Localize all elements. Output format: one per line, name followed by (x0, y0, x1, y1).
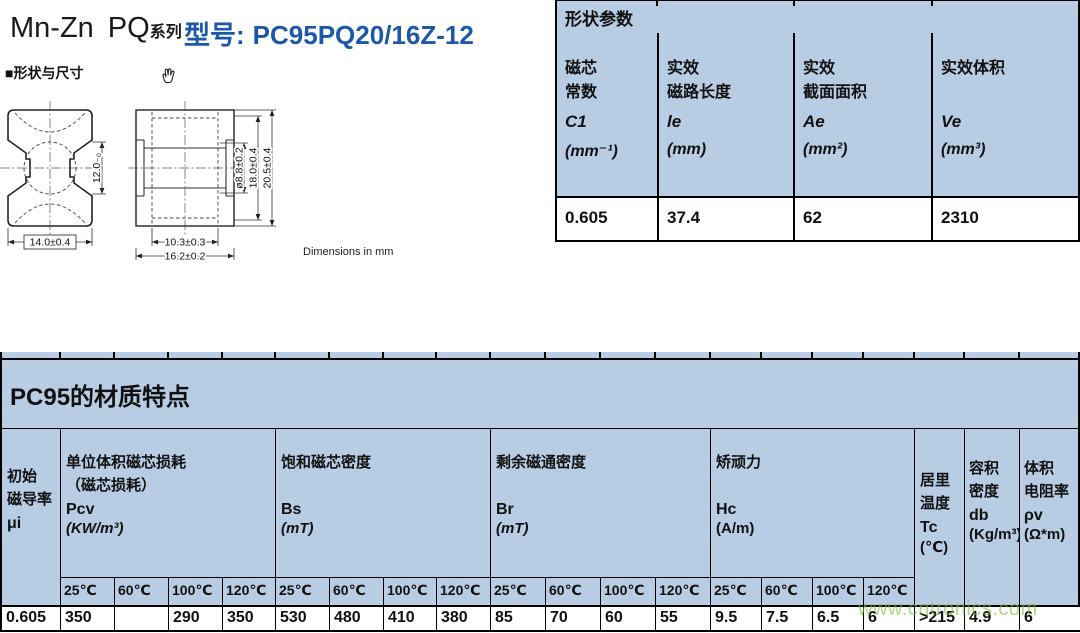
pcv-label-line2: （磁芯损耗） (66, 477, 156, 494)
tc-label-line1: 居里 (920, 472, 950, 489)
grab-cursor-icon (158, 66, 178, 88)
br-value-120: 55 (655, 605, 710, 630)
hc-value-60: 7.5 (761, 605, 812, 630)
hc-temp-25: 25℃ (710, 577, 761, 605)
dim-outer-height: 20.5±0.4 (262, 147, 274, 188)
table-top-tick (793, 1, 795, 6)
shape-params-table: 形状参数 磁芯常数 C1 (mm⁻¹) 实效磁路长度 le (mm) 实效截面面… (555, 0, 1080, 242)
tc-header: 居里温度 Tc (℃) (914, 428, 964, 605)
pcv-symbol: Pcv (66, 501, 275, 519)
br-unit: (mT) (496, 520, 710, 537)
pcv-temp-25: 25℃ (60, 577, 114, 605)
series-title: Mn-ZnPQ系列 (10, 12, 182, 45)
shape-params-title: 形状参数 (557, 1, 1078, 33)
mu-label-line2: 磁导率 (7, 491, 52, 508)
hc-label: 矫顽力 (716, 454, 761, 471)
hc-value-25: 9.5 (710, 605, 761, 630)
br-header: 剩余磁通密度 Br (mT) (490, 428, 710, 577)
ae-header: 实效截面面积 Ae (mm²) (793, 33, 931, 196)
c1-label-line1: 磁芯 (565, 60, 597, 77)
mu-label-line1: 初始 (7, 468, 37, 485)
pcv-unit: (KW/m³) (66, 520, 275, 537)
bs-temp-120: 120℃ (436, 577, 490, 605)
hc-temp-100: 100℃ (812, 577, 863, 605)
tc-label-line2: 温度 (920, 495, 950, 512)
bs-unit: (mT) (281, 520, 490, 537)
hc-temp-60: 60℃ (761, 577, 812, 605)
bs-header: 饱和磁芯密度 Bs (mT) (275, 428, 490, 577)
pcv-temp-60: 60℃ (114, 577, 168, 605)
dim-side-outer-width: 16.2±0.2 (165, 251, 206, 263)
pcv-value-120: 350 (222, 605, 275, 630)
db-label-line1: 容积 (969, 460, 999, 477)
bs-label: 饱和磁芯密度 (281, 454, 371, 471)
pcv-header: 单位体积磁芯损耗（磁芯损耗） Pcv (KW/m³) (60, 428, 275, 577)
watermark: www.cntronics.com (858, 598, 1038, 621)
ve-label-line1: 实效体积 (941, 60, 1005, 77)
section-title-text: 形状与尺寸 (13, 65, 83, 81)
bs-temp-100: 100℃ (383, 577, 436, 605)
hc-unit: (A/m) (716, 520, 914, 537)
br-label: 剩余磁通密度 (496, 454, 586, 471)
table-top-tick (656, 1, 658, 6)
dim-hole-diameter: ø8.8±0.2 (234, 147, 246, 189)
bs-value-100: 410 (383, 605, 436, 630)
series-name: Mn-Zn (10, 12, 94, 44)
material-table: PC95的材质特点 初始磁导率 μi 单位体积磁芯损耗（磁芯损耗） Pcv (K… (0, 352, 1080, 632)
rho-label-line1: 体积 (1024, 460, 1054, 477)
table-top-tick (931, 1, 933, 6)
ae-label-line2: 截面面积 (803, 84, 867, 101)
db-header: 容积密度 db (Kg/m³)*10³ (964, 428, 1019, 605)
series-suffix: 系列 (150, 24, 182, 41)
pcv-value-25: 350 (60, 605, 114, 630)
hc-header: 矫顽力 Hc (A/m) (710, 428, 914, 577)
ve-unit: (mm³) (941, 141, 1078, 159)
dim-side-inner-width: 10.3±0.3 (165, 237, 206, 249)
core-dimension-diagram: 14.0±0.4 12.0₋₀ ø8.8±0.2 18.0±0.4 20.5±0… (0, 96, 440, 268)
le-value: 37.4 (657, 196, 793, 240)
pcv-value-60 (114, 605, 168, 630)
ve-symbol: Ve (941, 112, 1078, 132)
mu-value: 0.605 (2, 605, 60, 630)
db-unit: (Kg/m³)*10³ (969, 526, 1019, 543)
br-temp-100: 100℃ (600, 577, 655, 605)
material-title: PC95的材质特点 (10, 377, 190, 412)
c1-symbol: C1 (565, 112, 657, 132)
ae-symbol: Ae (803, 112, 931, 132)
bs-value-120: 380 (436, 605, 490, 630)
mu-header: 初始磁导率 μi (2, 428, 60, 605)
le-header: 实效磁路长度 le (mm) (657, 33, 793, 196)
series-family: PQ (108, 12, 150, 44)
hc-value-100: 6.5 (812, 605, 863, 630)
dim-front-width: 14.0±0.4 (30, 237, 71, 249)
mu-symbol: μi (7, 515, 60, 533)
ve-header: 实效体积 Ve (mm³) (931, 33, 1078, 196)
br-symbol: Br (496, 501, 710, 519)
br-temp-60: 60℃ (545, 577, 600, 605)
tc-symbol: Tc (920, 519, 964, 537)
model-number: 型号:PC95PQ20/16Z-12 (184, 15, 474, 52)
br-temp-25: 25℃ (490, 577, 545, 605)
c1-header: 磁芯常数 C1 (mm⁻¹) (557, 33, 657, 196)
bs-temp-60: 60℃ (329, 577, 383, 605)
pcv-value-100: 290 (168, 605, 222, 630)
bs-symbol: Bs (281, 501, 490, 519)
db-label-line2: 密度 (969, 483, 999, 500)
dim-inner-height: 18.0±0.4 (248, 147, 260, 188)
bs-value-25: 530 (275, 605, 329, 630)
le-unit: (mm) (667, 141, 793, 159)
br-value-25: 85 (490, 605, 545, 630)
le-symbol: le (667, 112, 793, 132)
br-value-60: 70 (545, 605, 600, 630)
pcv-temp-100: 100℃ (168, 577, 222, 605)
c1-unit: (mm⁻¹) (565, 141, 657, 161)
pcv-temp-120: 120℃ (222, 577, 275, 605)
hc-symbol: Hc (716, 501, 914, 519)
dim-front-mid-height: 12.0₋₀ (91, 153, 103, 183)
shape-section-title: ■形状与尺寸 (5, 63, 83, 83)
br-temp-120: 120℃ (655, 577, 710, 605)
rho-unit: (Ω*m) (1024, 526, 1080, 543)
c1-value: 0.605 (557, 196, 657, 240)
rho-header: 体积电阻率 ρv (Ω*m) (1019, 428, 1080, 605)
model-label: 型号: (184, 20, 245, 50)
le-label-line1: 实效 (667, 60, 699, 77)
rho-label-line2: 电阻率 (1024, 483, 1069, 500)
c1-label-line2: 常数 (565, 84, 597, 101)
ve-value: 2310 (931, 196, 1078, 240)
dimensions-unit-note: Dimensions in mm (303, 246, 393, 258)
le-label-line2: 磁路长度 (667, 84, 731, 101)
model-value: PC95PQ20/16Z-12 (253, 20, 474, 50)
tc-unit: (℃) (920, 538, 964, 556)
br-value-100: 60 (600, 605, 655, 630)
datasheet-page: Mn-ZnPQ系列 型号:PC95PQ20/16Z-12 ■形状与尺寸 14.0… (0, 0, 1080, 633)
rho-symbol: ρv (1024, 507, 1080, 525)
ae-unit: (mm²) (803, 141, 931, 159)
ae-value: 62 (793, 196, 931, 240)
db-symbol: db (969, 507, 1019, 525)
ae-label-line1: 实效 (803, 60, 835, 77)
pcv-label-line1: 单位体积磁芯损耗 (66, 454, 186, 471)
bs-temp-25: 25℃ (275, 577, 329, 605)
bs-value-60: 480 (329, 605, 383, 630)
